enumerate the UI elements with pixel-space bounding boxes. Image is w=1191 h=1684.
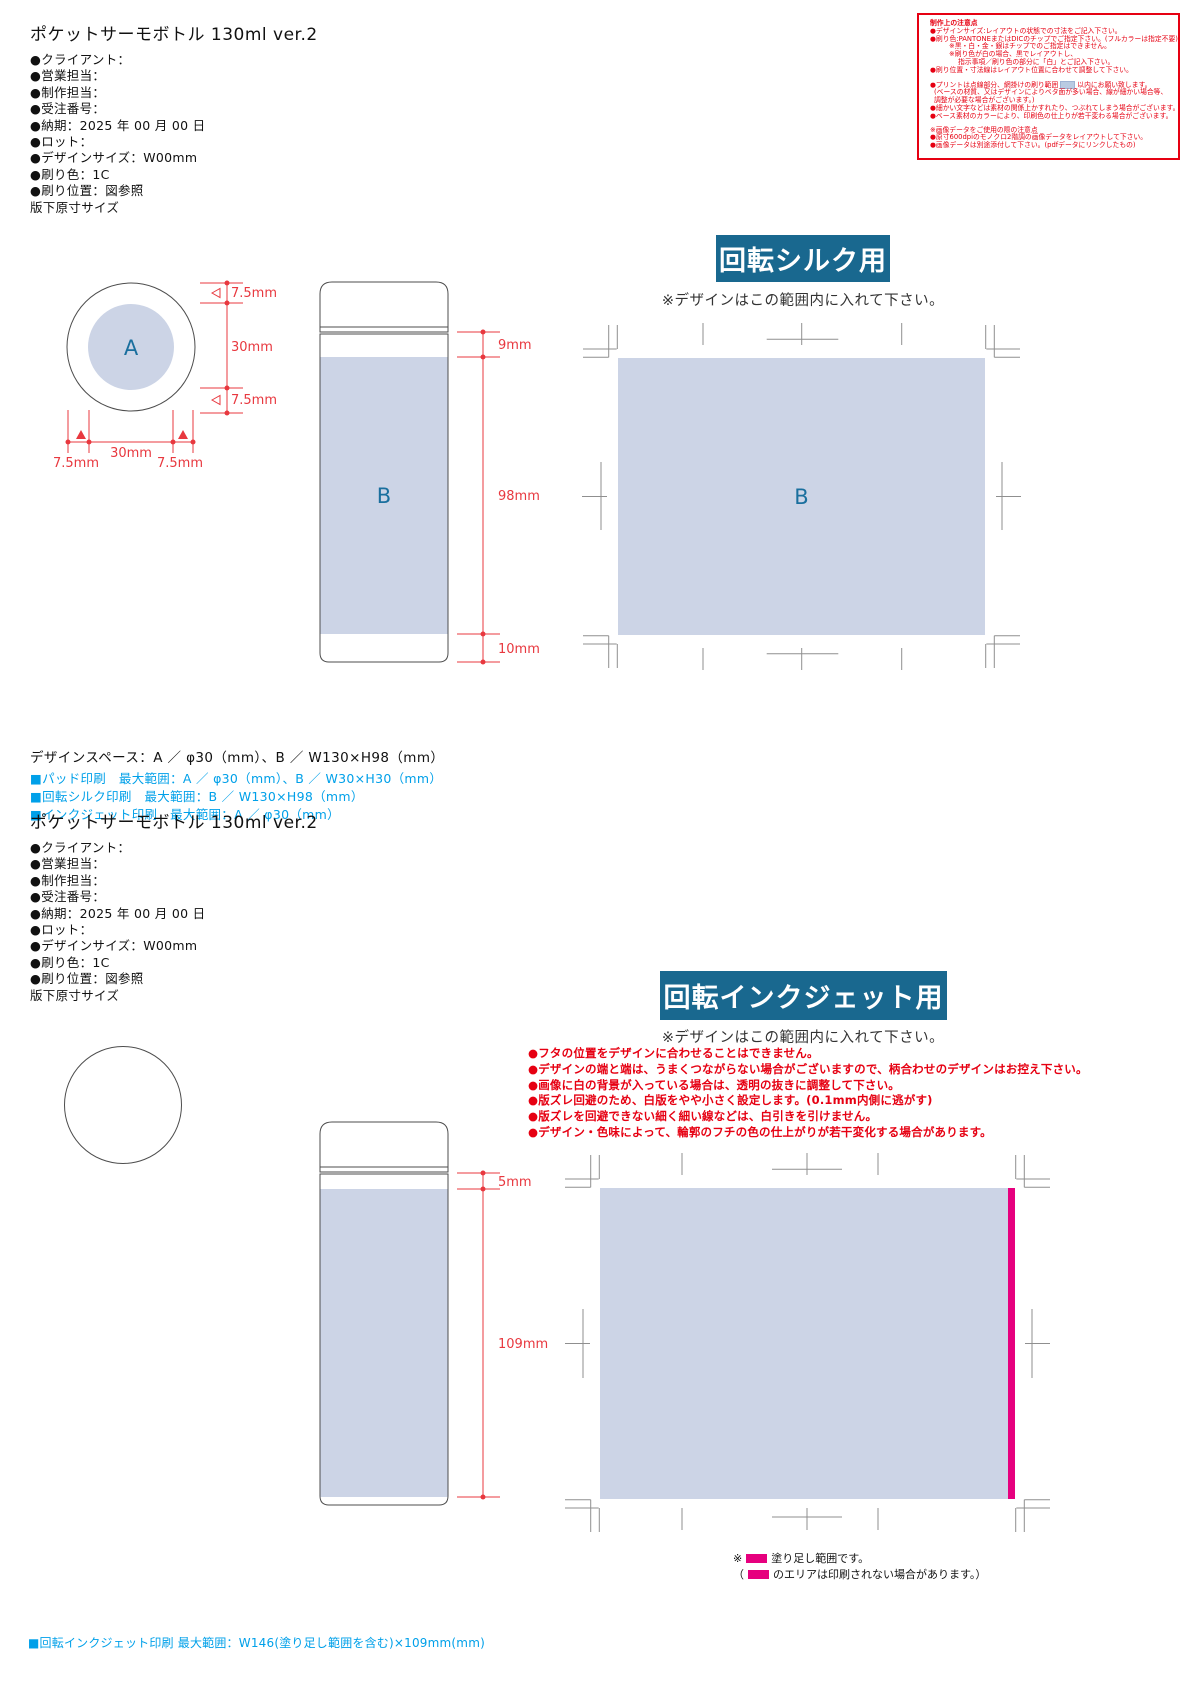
inkjet-print-banner-label: 回転インクジェット用 bbox=[664, 976, 944, 1015]
cap-outline-circle-plain bbox=[64, 1046, 182, 1164]
warning-line: ●版ズレ回避のため、白版をやや小さく設定します。(0.1mm内側に逃がす) bbox=[528, 1093, 1188, 1109]
bottle-cap bbox=[320, 1122, 448, 1172]
spec-line-lot: ●ロット： bbox=[30, 922, 450, 938]
spec-line-sales: ●営業担当： bbox=[30, 856, 450, 872]
inkjet-max-range-line: ■回転インクジェット印刷 最大範囲：W146(塗り足し範囲を含む)×109mm(… bbox=[28, 1634, 485, 1651]
spec-line-print-color: ●刷り色：1C bbox=[30, 955, 450, 971]
inkjet-warning-list: ●フタの位置をデザインに合わせることはできません。 ●デザインの端と端は、うまく… bbox=[528, 1046, 1188, 1141]
spec-line-design-size: ●デザインサイズ：W00mm bbox=[30, 150, 450, 166]
bleed-color-swatch bbox=[746, 1554, 767, 1563]
silk-print-banner: 回転シルク用 bbox=[716, 235, 890, 282]
bottle-sideview-diagram-inkjet: 5mm 109mm bbox=[315, 1115, 555, 1515]
dim-bottle2-top: 5mm bbox=[498, 1175, 532, 1190]
inkjet-print-note: ※デザインはこの範囲内に入れて下さい。 bbox=[640, 1026, 966, 1047]
warning-line: ●画像に白の背景が入っている場合は、透明の抜きに調整して下さい。 bbox=[528, 1078, 1188, 1094]
spec-line-order-no: ●受注番号： bbox=[30, 101, 450, 117]
notes-line: ●画像データは別途添付して下さい。(pdfデータにリンクしたもの) bbox=[930, 142, 1178, 150]
bleed-color-swatch bbox=[748, 1570, 769, 1579]
dimension-arrow-icon bbox=[178, 430, 188, 439]
spec-line-order-no: ●受注番号： bbox=[30, 889, 450, 905]
spec-line-sales: ●営業担当： bbox=[30, 68, 450, 84]
bottle-dimension-lines bbox=[457, 332, 500, 662]
production-notes-box: 制作上の注意点 ●デザインサイズ:レイアウトの状態での寸法をご記入下さい。 ●刷… bbox=[917, 13, 1180, 160]
silk-print-area-diagram: B bbox=[570, 315, 1070, 680]
cap-topview-diagram: A 7.5mm 30mm 7.5mm 7.5mm bbox=[40, 250, 280, 475]
spec-line-lot: ●ロット： bbox=[30, 134, 450, 150]
spec-line-actual-size: 版下原寸サイズ bbox=[30, 988, 450, 1004]
spec-line-client: ●クライアント： bbox=[30, 840, 450, 856]
warning-line: ●デザイン・色味によって、輪郭のフチの色の仕上がりが若干変化する場合があります。 bbox=[528, 1125, 1188, 1141]
silk-area-label: B bbox=[794, 485, 808, 509]
dim-bottle-bottom: 10mm bbox=[498, 642, 540, 657]
inkjet-print-area-rect bbox=[600, 1188, 1008, 1499]
dim-cap-bottom: 7.5mm bbox=[231, 393, 277, 408]
bottle-cap bbox=[320, 282, 448, 332]
bottle-print-area bbox=[321, 1189, 448, 1497]
warning-line: ●デザインの端と端は、うまくつながらない場合がございますので、柄合わせのデザイン… bbox=[528, 1062, 1188, 1078]
spec-line-print-position: ●刷り位置：図参照 bbox=[30, 971, 450, 987]
section1-product-title: ポケットサーモボトル 130ml ver.2 bbox=[30, 20, 450, 45]
cap-area-label: A bbox=[124, 336, 139, 360]
silk-print-note: ※デザインはこの範囲内に入れて下さい。 bbox=[640, 289, 966, 310]
spec-line-client: ●クライアント： bbox=[30, 52, 450, 68]
notes-line: ●ベース素材のカラーにより、印刷色の仕上りが若干変わる場合がございます。 bbox=[930, 113, 1178, 121]
legend-prefix: （ bbox=[733, 1568, 744, 1581]
design-space-line: デザインスペース：A ／ φ30（mm）、B ／ W130×H98（mm） bbox=[30, 746, 444, 766]
bottle-sideview-diagram: B 9mm 98mm 10mm bbox=[315, 275, 555, 675]
spec-line-delivery: ●納期：2025 年 00 月 00 日 bbox=[30, 906, 450, 922]
spec-line-production: ●制作担当： bbox=[30, 873, 450, 889]
dim-cap-right: 7.5mm bbox=[157, 456, 203, 471]
silk-print-banner-label: 回転シルク用 bbox=[719, 239, 887, 278]
legend-prefix: ※ bbox=[733, 1552, 742, 1565]
section2-product-title: ポケットサーモボトル 130ml ver.2 bbox=[30, 808, 450, 833]
spec-line-delivery: ●納期：2025 年 00 月 00 日 bbox=[30, 118, 450, 134]
warning-line: ●版ズレを回避できない細く細い線などは、白引きを引けません。 bbox=[528, 1109, 1188, 1125]
bleed-stripe bbox=[1008, 1188, 1015, 1499]
dim-bottle-top: 9mm bbox=[498, 338, 532, 353]
legend-text: 塗り足し範囲です。 bbox=[771, 1552, 869, 1565]
dim-bottle2-middle: 109mm bbox=[498, 1337, 548, 1352]
legend-text: のエリアは印刷されない場合があります。） bbox=[773, 1568, 986, 1581]
dimension-arrow-icon bbox=[212, 396, 220, 405]
pad-print-range: ■パッド印刷 最大範囲：A ／ φ30（mm）、B ／ W30×H30（mm） bbox=[30, 770, 444, 788]
dimension-arrow-icon bbox=[76, 430, 86, 439]
inkjet-print-area-diagram bbox=[555, 1145, 1085, 1545]
spec-line-production: ●制作担当： bbox=[30, 85, 450, 101]
dimension-arrow-icon bbox=[212, 289, 220, 298]
dim-cap-left: 7.5mm bbox=[53, 456, 99, 471]
bottle-dimension-lines bbox=[457, 1173, 500, 1497]
spec-line-print-position: ●刷り位置：図参照 bbox=[30, 183, 450, 199]
bleed-legend-line1: ※塗り足し範囲です。 bbox=[733, 1551, 986, 1567]
dim-cap-middle: 30mm bbox=[231, 340, 273, 355]
bottle-area-label: B bbox=[377, 484, 391, 508]
bleed-legend: ※塗り足し範囲です。 （のエリアは印刷されない場合があります。） bbox=[733, 1551, 986, 1583]
artwork-template-page: ポケットサーモボトル 130ml ver.2 ●クライアント： ●営業担当： ●… bbox=[0, 0, 1191, 1684]
warning-line: ●フタの位置をデザインに合わせることはできません。 bbox=[528, 1046, 1188, 1062]
notes-line: ●刷り位置・寸法線はレイアウト位置に合わせて調整して下さい。 bbox=[930, 67, 1178, 75]
dim-cap-center: 30mm bbox=[110, 446, 152, 461]
spec-line-design-size: ●デザインサイズ：W00mm bbox=[30, 938, 450, 954]
dim-cap-top: 7.5mm bbox=[231, 286, 277, 301]
section1-spec-header: ポケットサーモボトル 130ml ver.2 ●クライアント： ●営業担当： ●… bbox=[30, 20, 450, 216]
dim-bottle-middle: 98mm bbox=[498, 489, 540, 504]
bleed-legend-line2: （のエリアは印刷されない場合があります。） bbox=[733, 1567, 986, 1583]
section2-spec-header: ポケットサーモボトル 130ml ver.2 ●クライアント： ●営業担当： ●… bbox=[30, 808, 450, 1004]
spec-line-actual-size: 版下原寸サイズ bbox=[30, 200, 450, 216]
inkjet-print-banner: 回転インクジェット用 bbox=[660, 971, 947, 1020]
spec-line-print-color: ●刷り色：1C bbox=[30, 167, 450, 183]
silk-print-range: ■回転シルク印刷 最大範囲：B ／ W130×H98（mm） bbox=[30, 788, 444, 806]
